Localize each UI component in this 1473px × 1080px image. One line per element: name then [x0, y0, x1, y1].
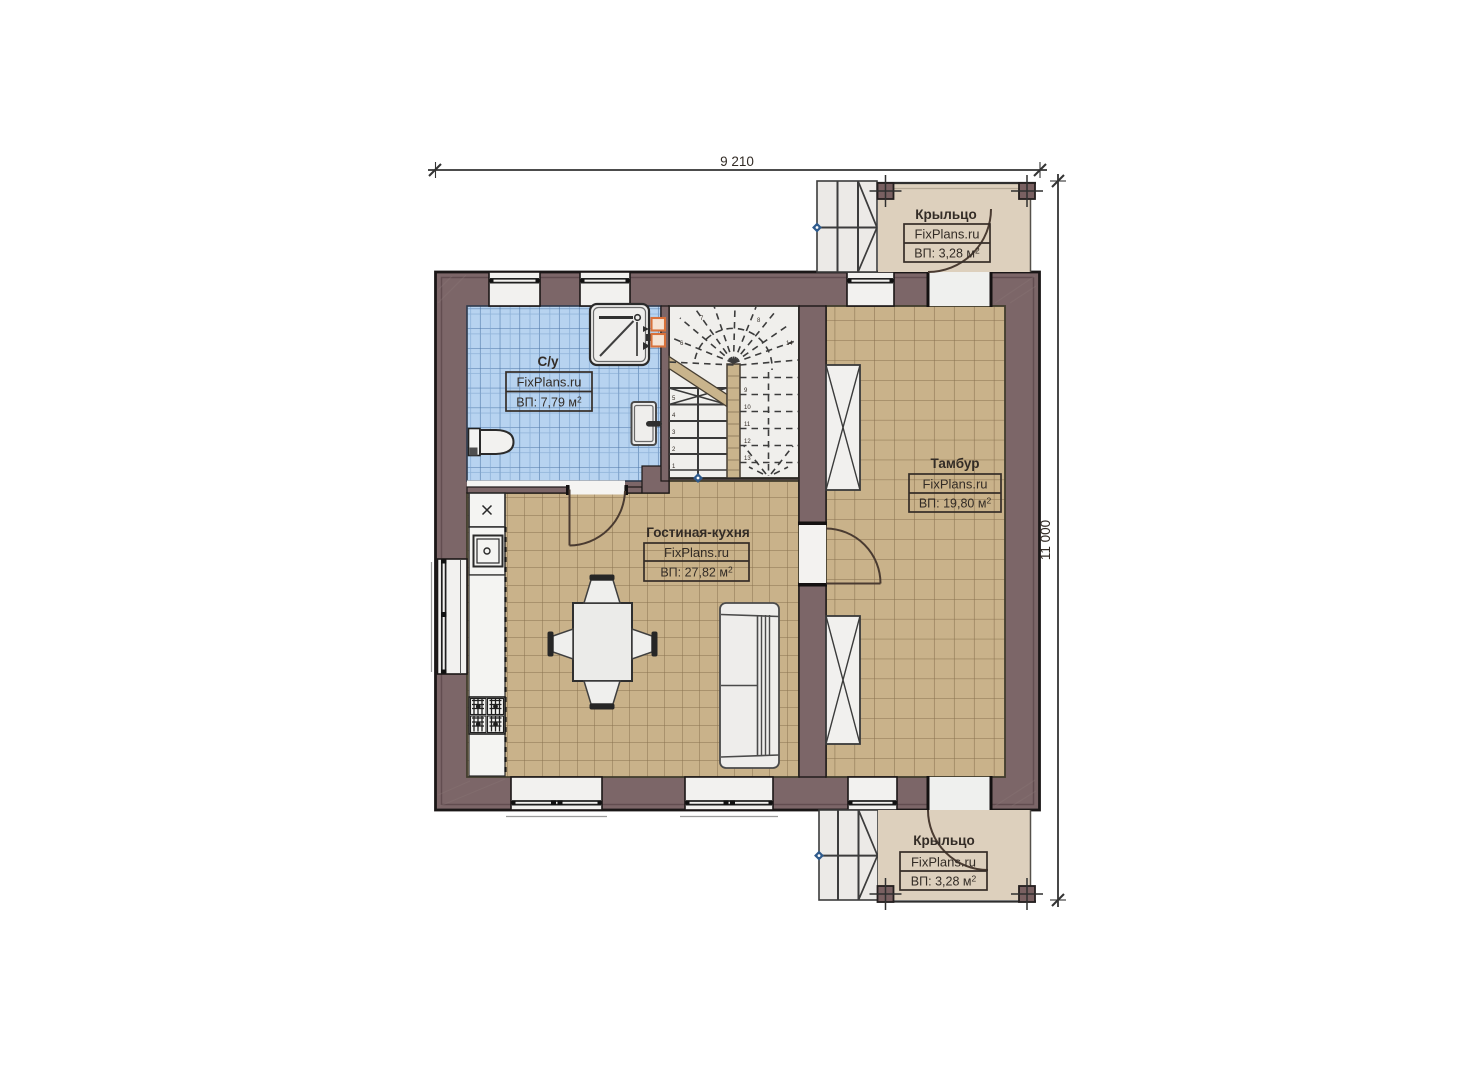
- svg-text:14: 14: [786, 341, 793, 347]
- svg-text:Крыльцо: Крыльцо: [913, 833, 974, 848]
- svg-text:ВП: 3,28 м2: ВП: 3,28 м2: [914, 246, 980, 261]
- svg-text:13: 13: [744, 456, 751, 462]
- svg-text:Гостиная-кухня: Гостиная-кухня: [646, 525, 749, 540]
- svg-text:ВП: 27,82 м2: ВП: 27,82 м2: [660, 565, 733, 580]
- svg-text:Тамбур: Тамбур: [931, 456, 980, 471]
- svg-text:FixPlans.ru: FixPlans.ru: [516, 375, 581, 390]
- svg-text:FixPlans.ru: FixPlans.ru: [664, 545, 729, 560]
- svg-text:ВП: 19,80 м2: ВП: 19,80 м2: [919, 496, 992, 511]
- svg-text:10: 10: [744, 405, 751, 411]
- svg-text:12: 12: [744, 439, 751, 445]
- svg-text:С/у: С/у: [537, 354, 559, 369]
- svg-text:Крыльцо: Крыльцо: [915, 207, 976, 222]
- svg-text:ВП: 3,28 м2: ВП: 3,28 м2: [911, 874, 977, 889]
- svg-text:FixPlans.ru: FixPlans.ru: [922, 477, 987, 492]
- svg-text:11: 11: [744, 422, 751, 428]
- svg-text:FixPlans.ru: FixPlans.ru: [914, 227, 979, 242]
- svg-text:FixPlans.ru: FixPlans.ru: [911, 855, 976, 870]
- svg-text:ВП: 7,79 м2: ВП: 7,79 м2: [516, 395, 582, 410]
- svg-text:9 210: 9 210: [720, 154, 754, 169]
- svg-text:11 000: 11 000: [1038, 520, 1053, 560]
